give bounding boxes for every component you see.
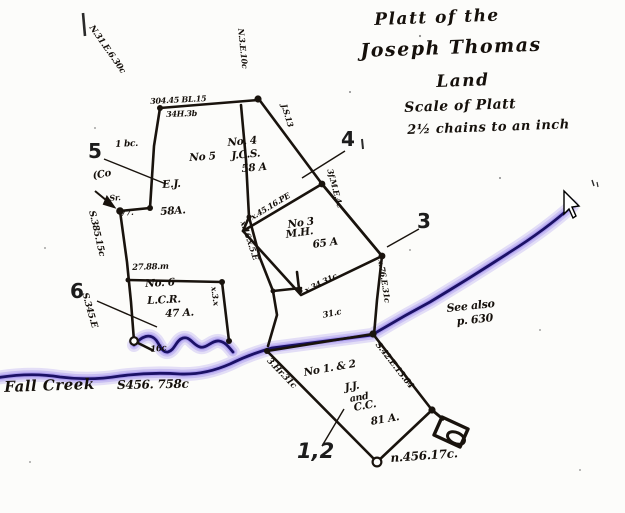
title-line-1: Platt of the <box>374 8 500 29</box>
title-line-4: Scale of Platt <box>404 97 516 115</box>
edge-note-top-above: 304.45 BL.15 <box>150 94 206 105</box>
edge-note-bc: 1 bc. <box>115 140 138 150</box>
parcel-5-area: 58A. <box>160 205 186 217</box>
edge-note-creek-16c: 16c <box>150 344 167 354</box>
parcel-5-owner: E.J. <box>162 179 181 191</box>
edge-note-no6-top: 27.88.m <box>132 263 169 273</box>
parcel-4-area: 58 A <box>241 162 267 175</box>
plat-map-scan: Platt of the Joseph Thomas Land Scale of… <box>0 0 625 513</box>
title-line-3: Land <box>436 72 490 91</box>
parcel-4-name: No. 4 <box>227 135 257 148</box>
parcel-6-area: 47 A. <box>165 308 194 320</box>
creek-survey-label: S456. 758c <box>117 378 189 391</box>
parcel-4-owner: J.C.S. <box>231 148 261 161</box>
edge-note-77: 77. <box>120 208 134 217</box>
edge-note-sr: Sr. <box>109 193 121 202</box>
parcel-number-5: 5 <box>88 141 102 161</box>
parcel-5-name: No 5 <box>189 151 216 163</box>
parcel-number-1-2: 1,2 <box>297 441 334 462</box>
flag-marker-icon <box>432 410 468 447</box>
page-ref-note: p. 630 <box>456 312 493 327</box>
edge-note-top-below: 34H.3b <box>166 109 197 118</box>
creek-name-label: Fall Creek <box>4 377 95 395</box>
edge-note-no6-right: x.3.x <box>210 286 221 306</box>
parcel-6-owner: L.C.R. <box>147 294 181 306</box>
parcel-number-4: 4 <box>341 129 355 149</box>
plat-drawing <box>0 0 625 513</box>
parcel-number-3: 3 <box>417 211 431 231</box>
parcel-6-name: No. 6 <box>145 277 175 289</box>
